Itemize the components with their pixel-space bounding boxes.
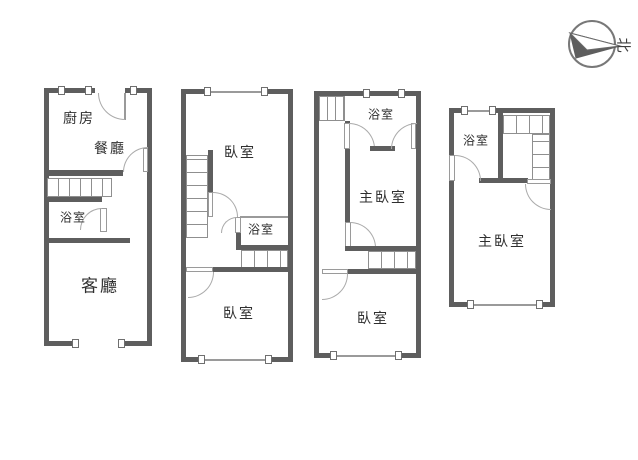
wall: [272, 357, 293, 362]
wall: [181, 357, 198, 362]
room-label-bedroom: 臥室: [224, 142, 256, 162]
wall: [479, 178, 528, 183]
room-label-living: 客廳: [81, 272, 119, 297]
door-arc: [322, 274, 348, 300]
wall: [44, 88, 49, 346]
door-arc: [455, 155, 481, 181]
window-jamb: [58, 86, 65, 95]
door-arc: [525, 184, 551, 210]
door-arc: [123, 147, 148, 172]
stairs: [47, 178, 112, 197]
stairs: [368, 251, 416, 269]
window-jamb: [130, 86, 137, 95]
room-label-master-bedroom: 主臥室: [478, 231, 526, 251]
window-jamb: [204, 87, 211, 96]
room-label-bathroom: 浴室: [60, 209, 86, 226]
room-label-dining: 餐廳: [94, 138, 126, 158]
wall: [125, 341, 152, 346]
wall: [543, 302, 555, 307]
wall: [348, 269, 421, 274]
window-jamb: [198, 355, 205, 364]
window-jamb: [363, 89, 370, 98]
window-line: [474, 304, 536, 306]
wall: [402, 353, 421, 358]
stairs: [186, 155, 208, 238]
floor-plan-2: 臥室 浴室 臥室: [181, 89, 293, 362]
wall: [44, 238, 130, 243]
room-label-bedroom: 臥室: [223, 303, 255, 323]
north-label: 北: [614, 37, 635, 52]
window-jamb: [265, 355, 272, 364]
door-arc: [213, 192, 238, 217]
window-line: [337, 355, 395, 357]
room-label-bedroom: 臥室: [357, 308, 389, 328]
window-jamb: [395, 351, 402, 360]
room-label-bathroom: 浴室: [248, 221, 274, 238]
window-jamb: [261, 87, 268, 96]
window-jamb: [85, 86, 92, 95]
wall: [496, 108, 555, 113]
wall: [449, 302, 467, 307]
window-jamb: [467, 300, 474, 309]
window-line: [211, 91, 261, 93]
window-jamb: [72, 339, 79, 348]
window-line: [468, 110, 489, 112]
stairs: [532, 134, 550, 181]
window-jamb: [489, 106, 496, 115]
compass: 北: [560, 15, 638, 77]
window-jamb: [461, 106, 468, 115]
room-label-kitchen: 廚房: [63, 108, 95, 128]
wall: [44, 197, 102, 202]
wall: [288, 89, 293, 362]
door-arc: [391, 123, 417, 149]
bathroom-top-line: [240, 216, 288, 218]
floor-plan-4: 浴室 主臥室: [449, 108, 555, 307]
stairs: [503, 115, 550, 134]
room-label-bathroom: 浴室: [463, 132, 489, 149]
door-arc: [188, 272, 214, 298]
wall: [314, 91, 319, 358]
wall: [314, 353, 330, 358]
wall: [449, 108, 454, 307]
wall: [147, 88, 152, 346]
floor-plan-canvas: 廚房 餐廳 浴室 客廳 臥室 浴室 臥室: [0, 0, 638, 460]
window-jamb: [118, 339, 125, 348]
stairs: [241, 250, 288, 268]
room-label-master-bedroom: 主臥室: [359, 187, 407, 207]
door-arc: [221, 217, 237, 233]
window-jamb: [330, 351, 337, 360]
wall: [213, 267, 288, 272]
wall: [44, 170, 123, 176]
stairs: [319, 96, 345, 121]
room-label-bathroom: 浴室: [368, 106, 394, 123]
door-arc: [350, 222, 376, 248]
door-arc: [98, 93, 125, 120]
window-line: [205, 359, 265, 361]
floor-plan-3: 浴室 主臥室 臥室: [314, 91, 421, 358]
window-jamb: [398, 89, 405, 98]
floor-plan-1: 廚房 餐廳 浴室 客廳: [44, 88, 152, 346]
wall: [44, 341, 72, 346]
wall: [208, 150, 213, 192]
window-jamb: [536, 300, 543, 309]
